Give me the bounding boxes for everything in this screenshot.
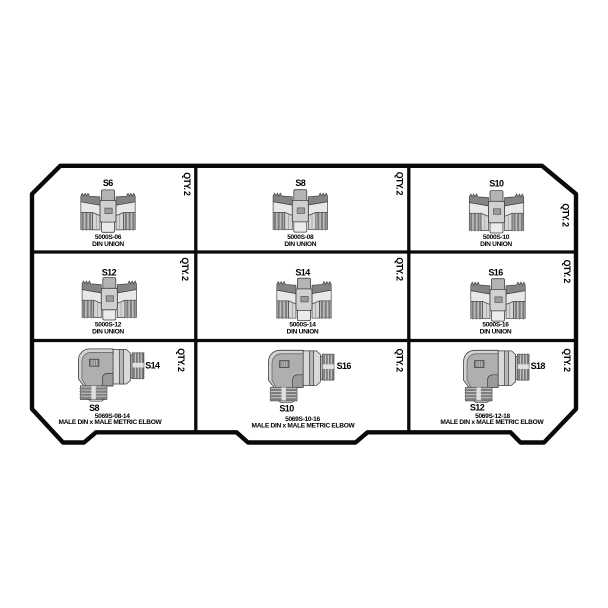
svg-text:S12: S12: [470, 403, 485, 413]
svg-text:MALE DIN x MALE METRIC ELBOW: MALE DIN x MALE METRIC ELBOW: [252, 422, 356, 429]
svg-text:DIN UNION: DIN UNION: [92, 241, 124, 248]
svg-text:DIN UNION: DIN UNION: [480, 329, 512, 336]
svg-text:S16: S16: [337, 361, 352, 371]
svg-text:DIN UNION: DIN UNION: [92, 329, 124, 336]
svg-text:S16: S16: [488, 267, 503, 277]
svg-text:DIN UNION: DIN UNION: [287, 329, 319, 336]
svg-text:QTY. 2: QTY. 2: [176, 348, 186, 372]
svg-text:QTY. 2: QTY. 2: [180, 257, 190, 281]
svg-text:MALE DIN x MALE METRIC ELBOW: MALE DIN x MALE METRIC ELBOW: [440, 419, 544, 426]
svg-text:MALE DIN x MALE METRIC ELBOW: MALE DIN x MALE METRIC ELBOW: [59, 419, 163, 426]
svg-text:S8: S8: [295, 178, 305, 188]
svg-text:S10: S10: [279, 404, 294, 414]
svg-text:S10: S10: [489, 178, 504, 188]
svg-text:S6: S6: [103, 178, 113, 188]
svg-text:S8: S8: [89, 403, 99, 413]
svg-text:QTY. 2: QTY. 2: [562, 260, 572, 284]
svg-text:QTY. 2: QTY. 2: [394, 349, 404, 373]
svg-text:S18: S18: [531, 361, 546, 371]
svg-text:DIN UNION: DIN UNION: [480, 241, 512, 248]
svg-text:QTY. 2: QTY. 2: [562, 348, 572, 372]
svg-text:S12: S12: [102, 267, 117, 277]
svg-text:QTY. 2: QTY. 2: [560, 203, 570, 227]
svg-text:S14: S14: [145, 361, 160, 371]
svg-text:QTY. 2: QTY. 2: [182, 172, 192, 196]
svg-text:QTY. 2: QTY. 2: [394, 172, 404, 196]
svg-text:S14: S14: [295, 267, 310, 277]
svg-text:DIN UNION: DIN UNION: [284, 241, 316, 248]
svg-text:QTY. 2: QTY. 2: [394, 257, 404, 281]
